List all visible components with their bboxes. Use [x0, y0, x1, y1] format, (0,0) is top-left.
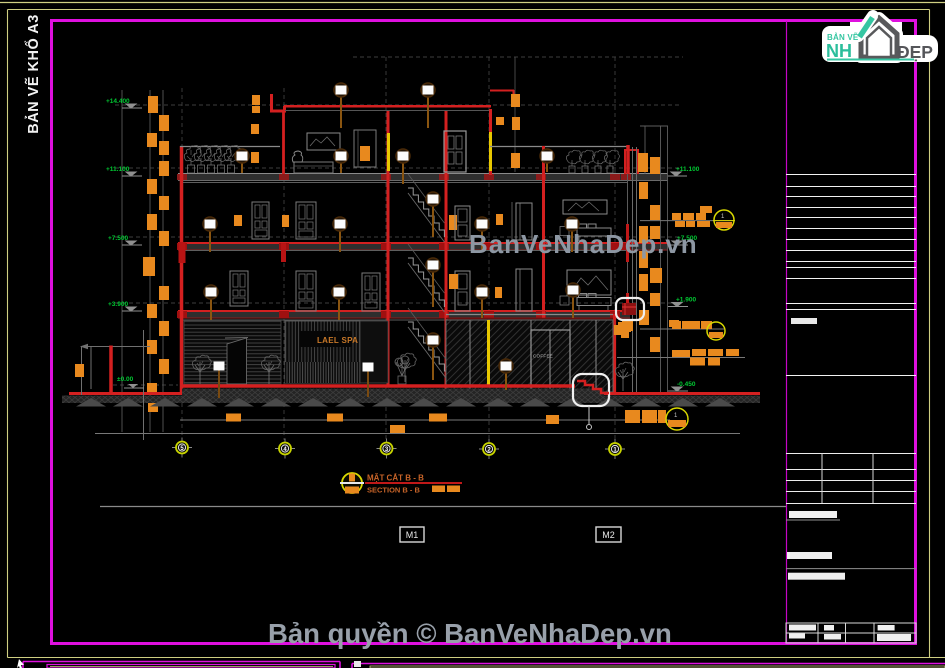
svg-text:LAEL SPA: LAEL SPA [317, 336, 358, 345]
svg-text:COFFEE: COFFEE [533, 354, 553, 359]
svg-text:BanVeNhaDep.vn: BanVeNhaDep.vn [469, 229, 698, 259]
svg-text:Bản quyền © BanVeNhaDep.vn: Bản quyền © BanVeNhaDep.vn [268, 618, 672, 649]
svg-text:M1: M1 [406, 530, 419, 540]
svg-text:±0.00: ±0.00 [117, 376, 134, 383]
svg-text:BẢN VẼ KHỔ A3: BẢN VẼ KHỔ A3 [24, 14, 42, 134]
svg-text:NH: NH [826, 41, 852, 61]
svg-text:MẶT CẮT B - B: MẶT CẮT B - B [367, 474, 424, 483]
svg-text:M2: M2 [602, 530, 615, 540]
svg-text:SECTION B - B: SECTION B - B [367, 486, 421, 495]
